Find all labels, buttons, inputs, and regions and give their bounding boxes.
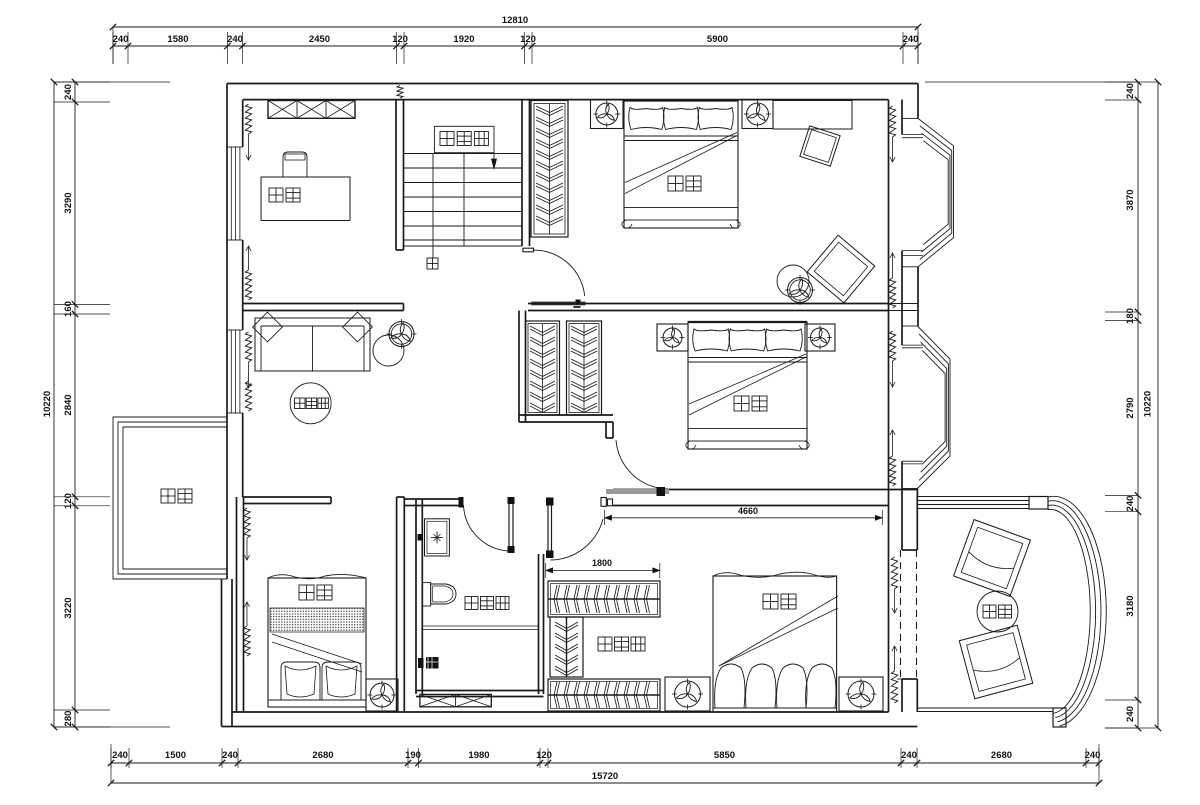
svg-text:2450: 2450 — [309, 34, 330, 45]
svg-text:240: 240 — [901, 750, 917, 761]
svg-text:1580: 1580 — [167, 34, 188, 45]
svg-text:2680: 2680 — [991, 750, 1012, 761]
svg-text:10220: 10220 — [1143, 391, 1154, 417]
svg-text:3290: 3290 — [63, 192, 74, 213]
svg-text:1920: 1920 — [453, 34, 474, 45]
svg-text:1980: 1980 — [468, 750, 489, 761]
svg-text:240: 240 — [1125, 496, 1136, 512]
svg-text:240: 240 — [222, 750, 238, 761]
svg-text:1500: 1500 — [165, 750, 186, 761]
svg-text:180: 180 — [1125, 308, 1136, 324]
svg-text:120: 120 — [520, 34, 536, 45]
svg-text:2680: 2680 — [312, 750, 333, 761]
svg-text:160: 160 — [63, 301, 74, 317]
svg-text:240: 240 — [113, 34, 129, 45]
svg-text:240: 240 — [1125, 706, 1136, 722]
svg-text:280: 280 — [63, 711, 74, 727]
svg-text:240: 240 — [903, 34, 919, 45]
svg-text:4660: 4660 — [738, 506, 758, 516]
svg-text:240: 240 — [1085, 750, 1101, 761]
svg-text:1800: 1800 — [592, 558, 612, 568]
svg-text:120: 120 — [536, 750, 552, 761]
svg-text:5850: 5850 — [714, 750, 735, 761]
svg-text:15720: 15720 — [592, 771, 618, 782]
svg-text:3220: 3220 — [63, 597, 74, 618]
svg-text:10220: 10220 — [42, 391, 53, 417]
svg-text:12810: 12810 — [502, 15, 528, 26]
svg-text:240: 240 — [112, 750, 128, 761]
svg-text:240: 240 — [1125, 83, 1136, 99]
svg-text:240: 240 — [63, 84, 74, 100]
svg-text:3180: 3180 — [1125, 595, 1136, 616]
svg-text:3870: 3870 — [1125, 189, 1136, 210]
svg-text:5900: 5900 — [707, 34, 728, 45]
svg-text:2790: 2790 — [1125, 397, 1136, 418]
svg-text:120: 120 — [63, 493, 74, 509]
svg-text:2840: 2840 — [63, 394, 74, 415]
svg-text:120: 120 — [392, 34, 408, 45]
svg-text:240: 240 — [227, 34, 243, 45]
